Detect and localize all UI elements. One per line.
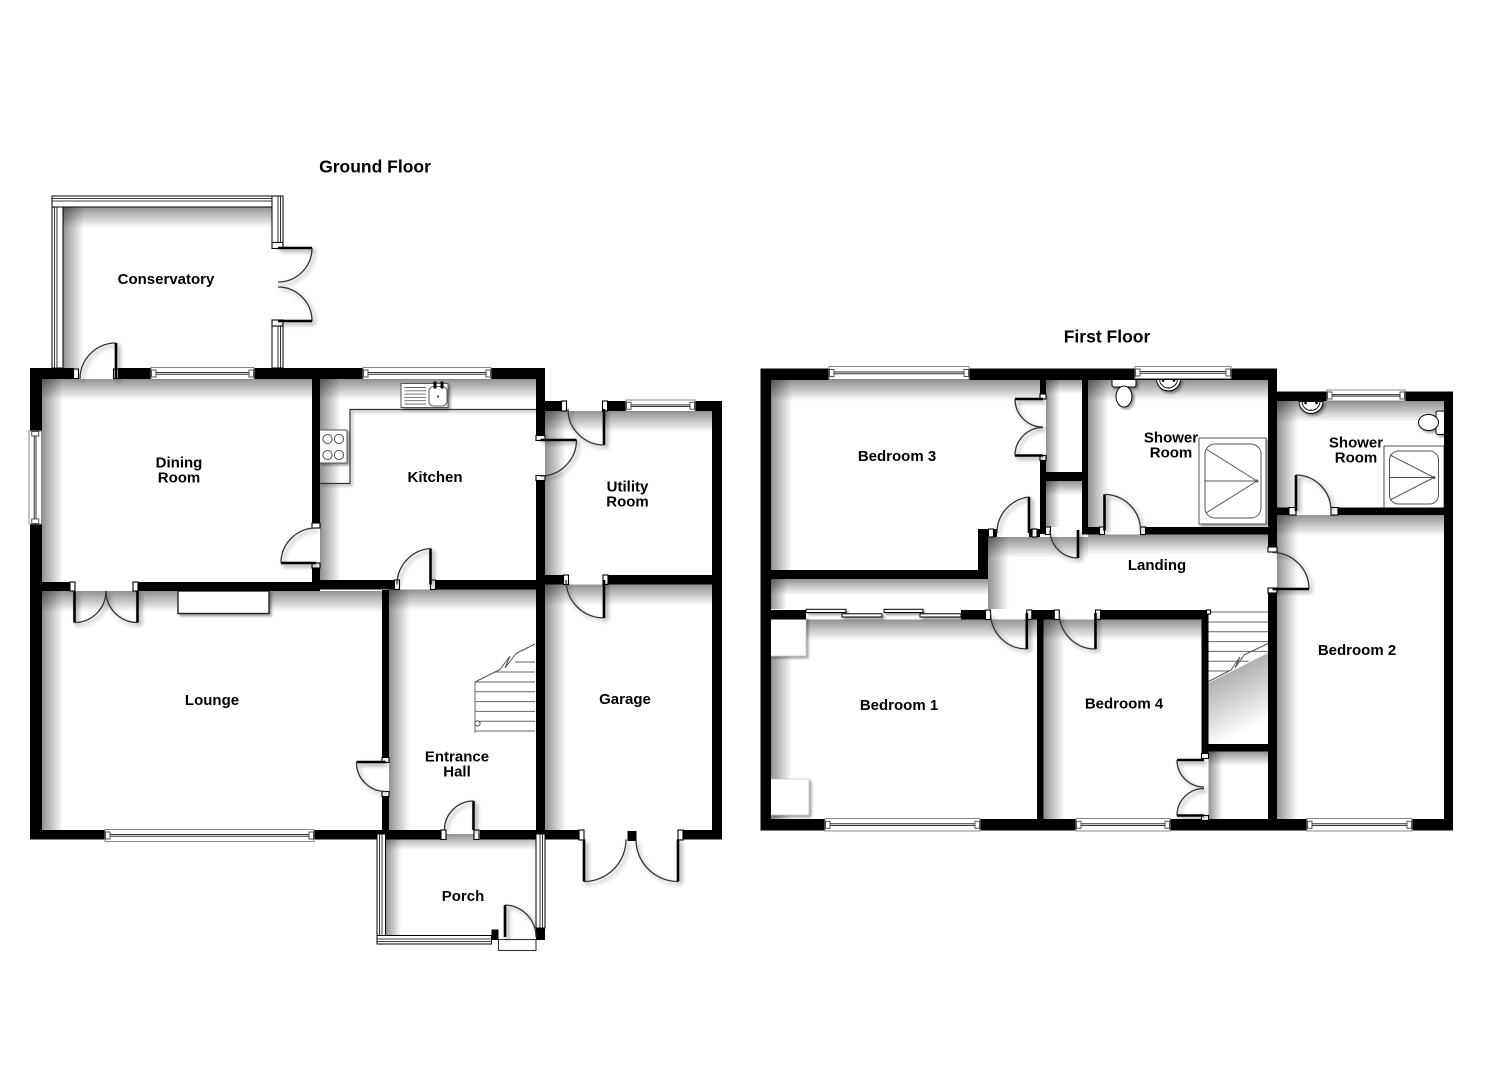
svg-text:ShowerRoom: ShowerRoom <box>1144 429 1198 461</box>
svg-text:Conservatory: Conservatory <box>118 271 215 288</box>
svg-text:UtilityRoom: UtilityRoom <box>606 478 649 510</box>
svg-text:Landing: Landing <box>1128 557 1186 574</box>
svg-text:Bedroom 3: Bedroom 3 <box>858 448 936 465</box>
svg-text:Bedroom 1: Bedroom 1 <box>860 697 938 714</box>
svg-text:Kitchen: Kitchen <box>407 469 462 486</box>
svg-text:Bedroom 4: Bedroom 4 <box>1085 695 1164 712</box>
svg-text:DiningRoom: DiningRoom <box>156 454 203 486</box>
svg-text:Bedroom 2: Bedroom 2 <box>1318 642 1396 659</box>
svg-text:First Floor: First Floor <box>1064 327 1151 347</box>
svg-text:ShowerRoom: ShowerRoom <box>1329 434 1383 466</box>
svg-text:Garage: Garage <box>599 691 651 708</box>
svg-text:Ground Floor: Ground Floor <box>319 157 431 177</box>
svg-text:Porch: Porch <box>442 888 485 905</box>
svg-text:Lounge: Lounge <box>185 692 239 709</box>
